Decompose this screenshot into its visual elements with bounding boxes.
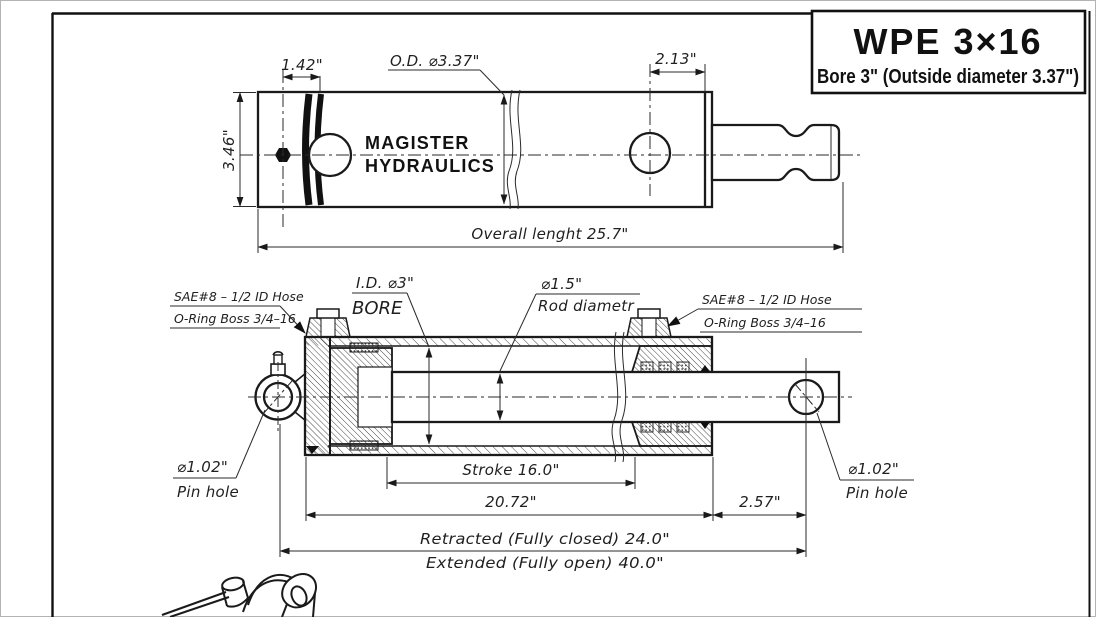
dim-text: Stroke 16.0" xyxy=(462,461,559,479)
weld-band xyxy=(306,94,310,205)
drawing-canvas: WPE 3×16 Bore 3" (Outside diameter 3.37"… xyxy=(0,0,1096,617)
piston-seal xyxy=(350,441,378,450)
label-text: ⌀1.02" xyxy=(848,460,899,478)
rod-seal xyxy=(677,422,689,432)
label-text: ⌀1.5" xyxy=(541,275,582,293)
dimension-extended: Extended (Fully open) 40.0" xyxy=(426,554,664,572)
dim-text: Extended (Fully open) 40.0" xyxy=(426,554,664,572)
dim-text: 3.46" xyxy=(220,129,238,171)
port-plug-hex xyxy=(317,309,339,318)
label-text: Rod diametr xyxy=(538,297,634,315)
rod-seal xyxy=(659,422,671,432)
end-cap-section xyxy=(305,337,330,455)
label-text: BORE xyxy=(352,298,403,319)
label-text: SAE#8 – 1/2 ID Hose xyxy=(702,292,832,307)
dim-text: 2.13" xyxy=(655,50,697,68)
label-text: I.D. ⌀3" xyxy=(356,274,414,292)
piston-seal xyxy=(350,343,378,352)
dim-text: O.D. ⌀3.37" xyxy=(390,52,480,70)
dim-text: 1.42" xyxy=(281,56,323,74)
model-subtitle: Bore 3" (Outside diameter 3.37") xyxy=(817,66,1079,88)
brand-line2: HYDRAULICS xyxy=(365,156,495,176)
title-block: WPE 3×16 Bore 3" (Outside diameter 3.37"… xyxy=(812,11,1085,93)
label-text: Pin hole xyxy=(177,483,239,501)
piston-rod-side xyxy=(712,125,839,180)
label-text: O-Ring Boss 3/4–16 xyxy=(174,311,296,326)
dim-text: Retracted (Fully closed) 24.0" xyxy=(420,530,670,548)
dim-text: Overall lenght 25.7" xyxy=(471,225,628,243)
rod-seal xyxy=(641,362,653,372)
drawing-page: WPE 3×16 Bore 3" (Outside diameter 3.37"… xyxy=(0,0,1096,617)
rod-seal xyxy=(641,422,653,432)
label-text: SAE#8 – 1/2 ID Hose xyxy=(174,289,304,304)
dim-text: 2.57" xyxy=(739,493,781,511)
label-text: Pin hole xyxy=(846,484,908,502)
dim-text: 20.72" xyxy=(485,493,537,511)
label-text: O-Ring Boss 3/4–16 xyxy=(704,315,826,330)
brand-line1: MAGISTER xyxy=(365,133,470,153)
label-text: ⌀1.02" xyxy=(177,458,228,476)
rod-seal xyxy=(659,362,671,372)
model-name: WPE 3×16 xyxy=(853,21,1042,62)
rod-seal xyxy=(677,362,689,372)
